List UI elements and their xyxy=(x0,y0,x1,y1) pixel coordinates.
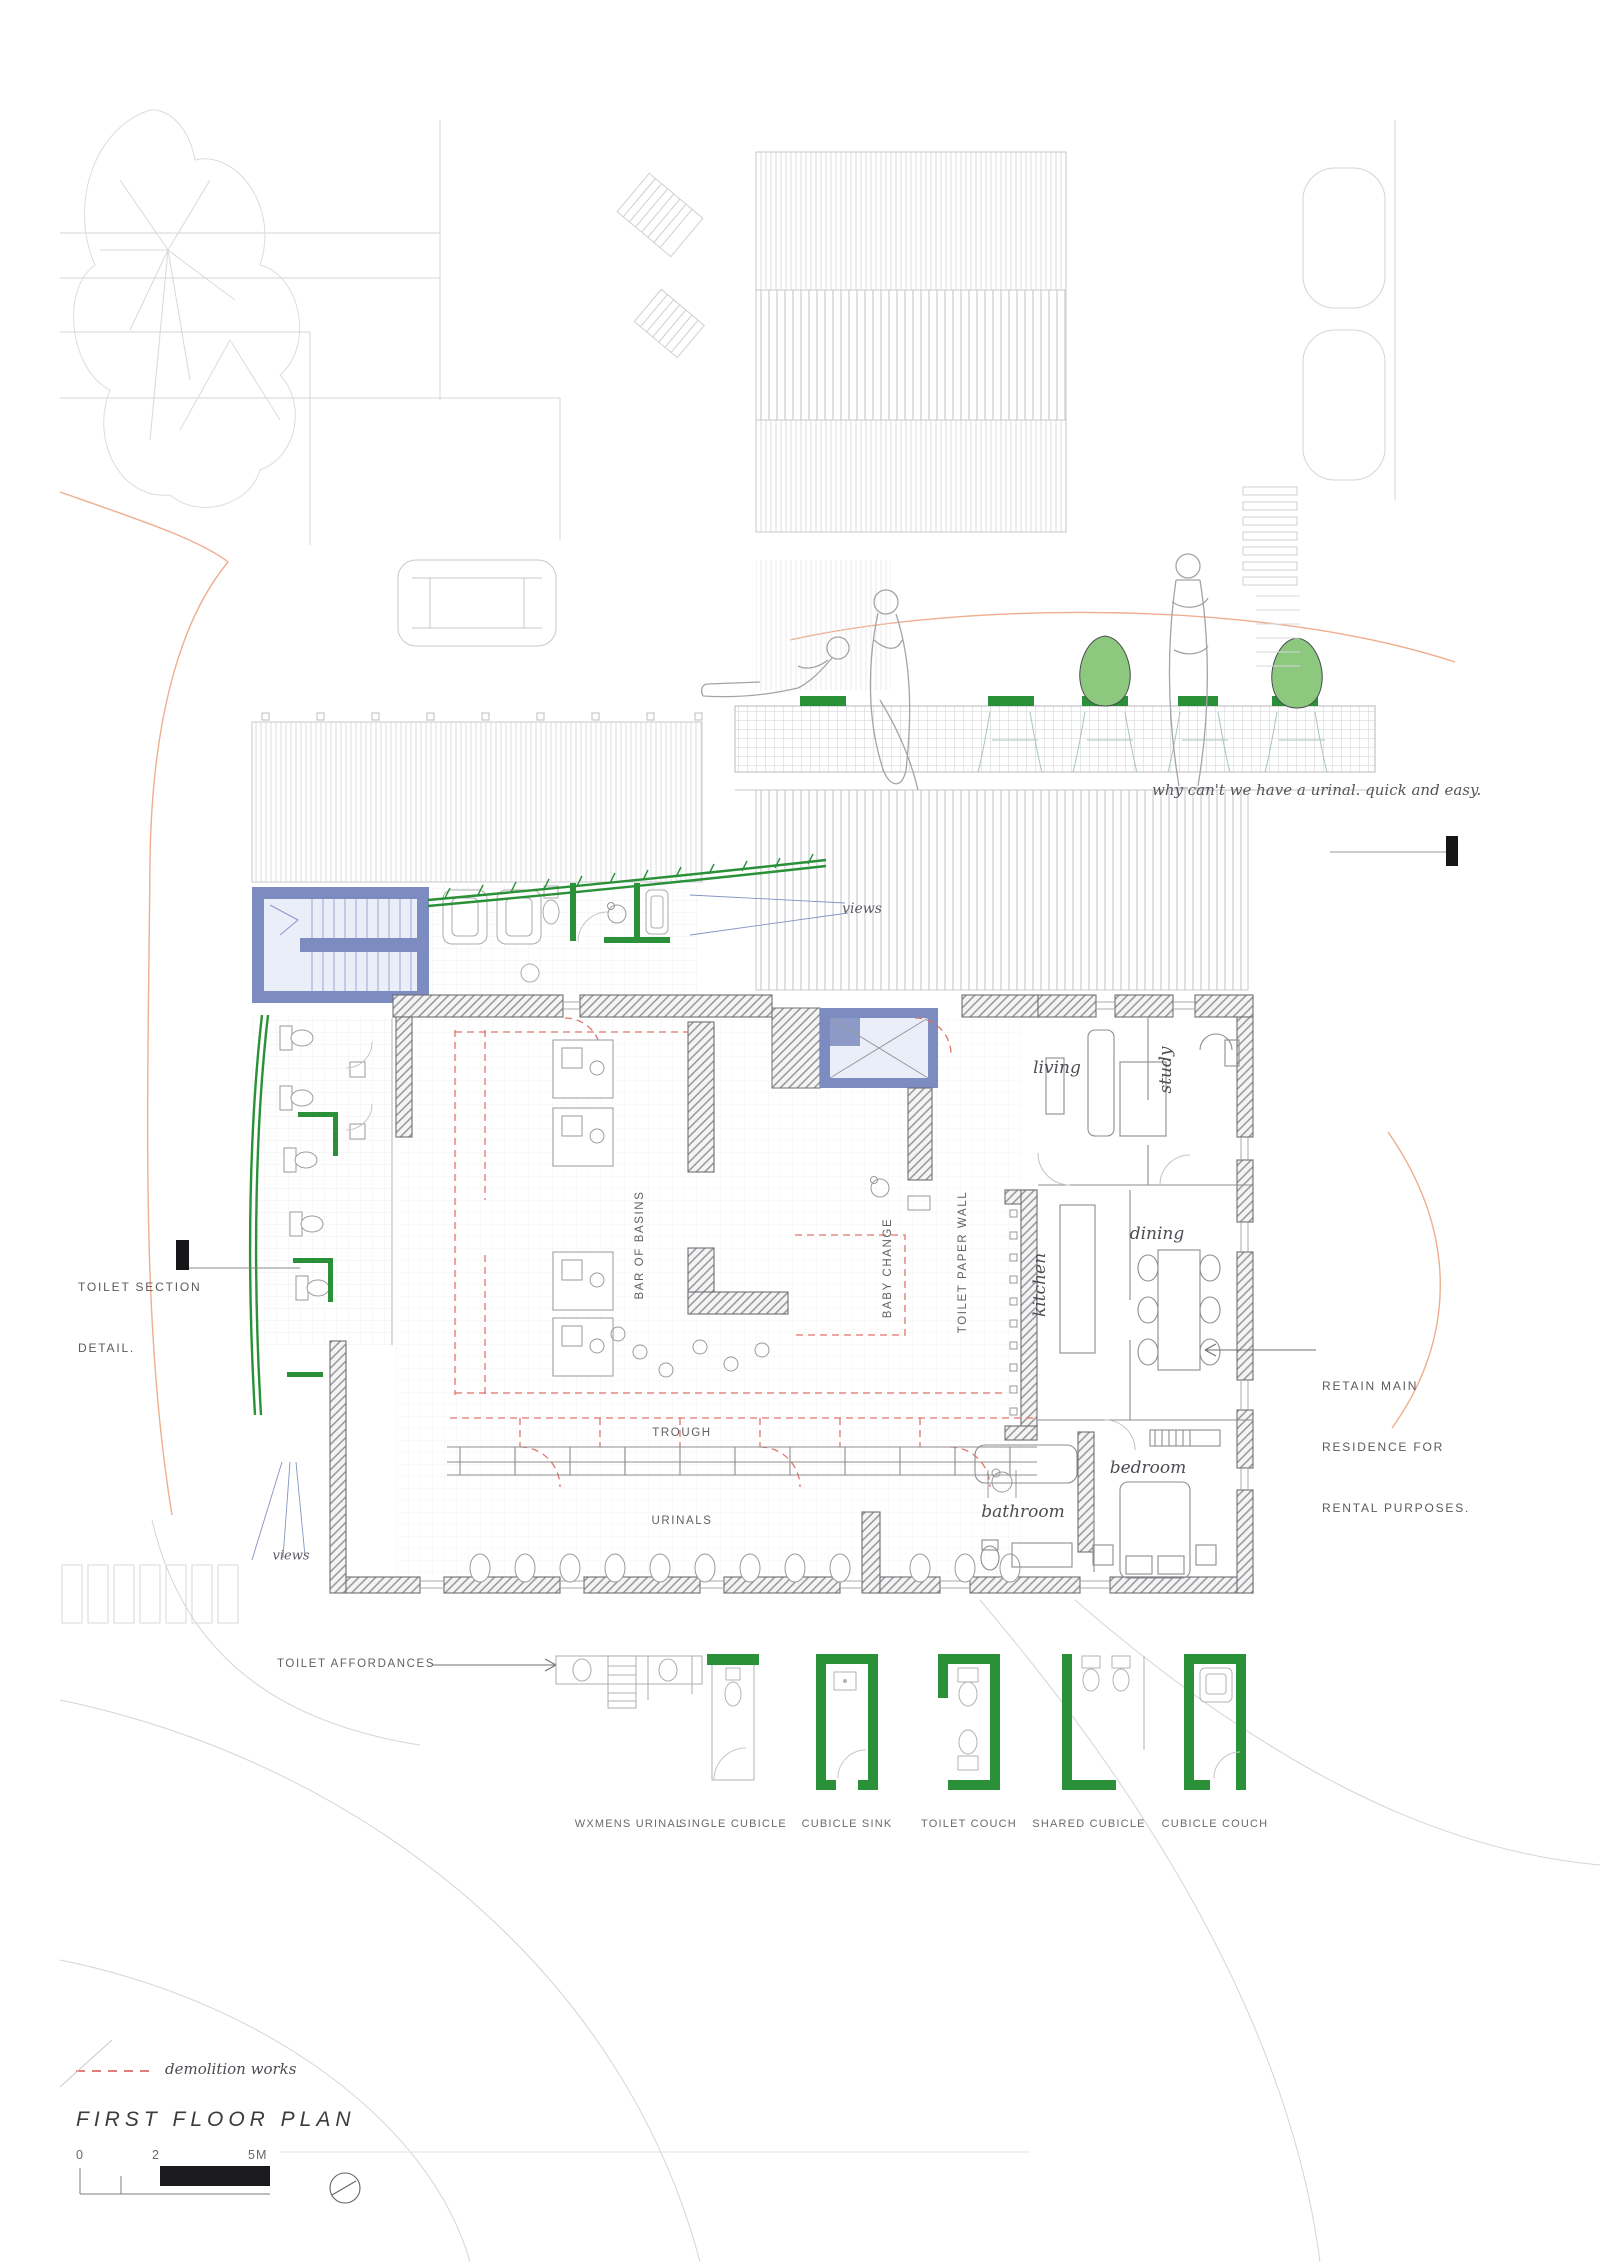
room-label-dining: dining xyxy=(1130,1224,1185,1244)
crosswalk xyxy=(1243,487,1297,585)
floor-plan-sheet: why can't we have a urinal. quick and ea… xyxy=(0,0,1600,2262)
car xyxy=(398,560,556,646)
cubicle-couch-icon xyxy=(1184,1654,1246,1790)
toilet-section-line1: TOILET SECTION xyxy=(78,1277,201,1297)
plan-drawing xyxy=(0,0,1600,2262)
baby-change-label: BABY CHANGE xyxy=(882,1218,894,1318)
parking-stalls xyxy=(62,1565,238,1623)
lift-shaft xyxy=(772,1008,938,1088)
toilet-affordances-label: TOILET AFFORDANCES xyxy=(277,1658,435,1670)
north-indicator xyxy=(330,2173,360,2203)
trough-label: TROUGH xyxy=(652,1427,711,1439)
bar-of-basins-label: BAR OF BASINS xyxy=(634,1191,646,1300)
column-grid xyxy=(262,713,702,720)
toilet-section-note: TOILET SECTION DETAIL. xyxy=(78,1236,201,1379)
room-label-bedroom: bedroom xyxy=(1110,1458,1187,1478)
urinals-label: URINALS xyxy=(651,1515,712,1527)
scale-tick-2: 2 xyxy=(152,2148,160,2162)
room-label-study: study xyxy=(1156,1047,1176,1094)
affordances-arrow xyxy=(432,1659,556,1671)
single-cubicle-icon xyxy=(707,1654,759,1780)
room-label-living: living xyxy=(1033,1058,1081,1078)
retain-line3: RENTAL PURPOSES. xyxy=(1322,1498,1470,1518)
stair-enclosure xyxy=(252,887,429,1003)
shared-cubicle-icon xyxy=(1062,1654,1144,1790)
views-label-top: views xyxy=(842,901,882,917)
legend-icons xyxy=(556,1654,1246,1790)
bench-seat-pads xyxy=(800,696,1318,706)
scale-tick-5m: 5M xyxy=(248,2148,267,2162)
demolition-legend-line xyxy=(60,2040,152,2087)
tree-canopy xyxy=(74,110,300,508)
toilet-couch-icon xyxy=(938,1654,1000,1790)
retain-line2: RESIDENCE FOR xyxy=(1322,1437,1470,1457)
urinal-note: why can't we have a urinal. quick and ea… xyxy=(1152,781,1481,799)
bench-wall xyxy=(735,706,1375,772)
vent-grille xyxy=(634,289,704,357)
views-label-bottom: views xyxy=(273,1549,310,1564)
drawing-title: FIRST FLOOR PLAN xyxy=(76,2108,356,2132)
wxmens-urinal-icon xyxy=(556,1656,702,1708)
room-label-kitchen: kitchen xyxy=(1030,1253,1050,1317)
toilet-section-line2: DETAIL. xyxy=(78,1338,201,1358)
demolition-legend-label: demolition works xyxy=(165,2060,296,2078)
legend-label-cubicle-couch: CUBICLE COUCH xyxy=(1140,1818,1290,1830)
cubicle-sink-icon xyxy=(816,1654,878,1790)
scale-bar xyxy=(80,2166,270,2194)
toilet-paper-wall-label: TOILET PAPER WALL xyxy=(957,1191,969,1333)
retain-arrow xyxy=(1205,1344,1316,1356)
retain-line1: RETAIN MAIN xyxy=(1322,1376,1470,1396)
room-label-bathroom: bathroom xyxy=(981,1502,1065,1522)
retain-note: RETAIN MAIN RESIDENCE FOR RENTAL PURPOSE… xyxy=(1322,1335,1470,1539)
scale-tick-0: 0 xyxy=(76,2148,84,2162)
view-lines-bottom xyxy=(252,1462,305,1560)
vent-grille xyxy=(617,173,703,256)
